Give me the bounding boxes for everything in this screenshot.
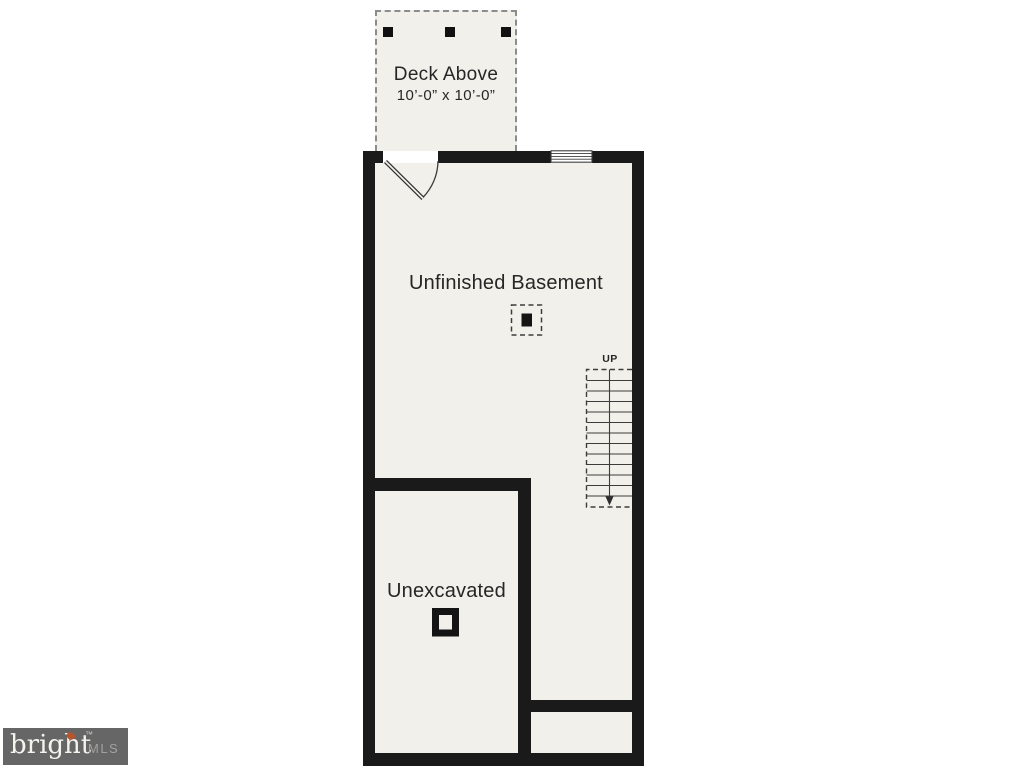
pier-symbol-icon [436,612,456,634]
staircase [587,370,633,508]
plan-symbols [0,0,1024,768]
unexcavated-label: Unexcavated [375,580,518,603]
stairs-up-label: UP [594,353,626,365]
basement-label: Unfinished Basement [375,272,637,295]
watermark-brand: bright [10,725,91,762]
floor-plan-canvas: Deck Above 10’-0” x 10’-0” [0,0,1024,768]
brightmls-logo: bright ™ MLS [3,728,128,765]
watermark-suffix: MLS [88,741,119,756]
window-icon [551,151,592,162]
watermark-trademark: ™ [85,730,93,739]
column-symbol-icon [512,305,542,335]
door-swing-icon [386,161,439,199]
